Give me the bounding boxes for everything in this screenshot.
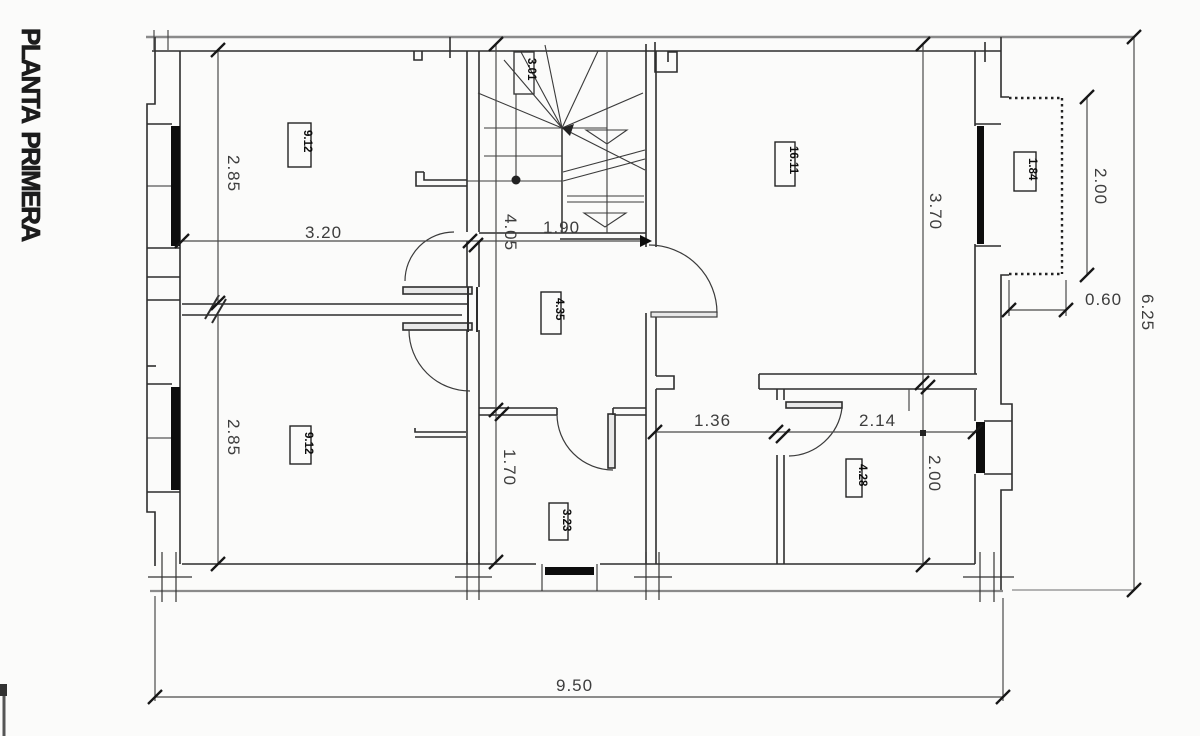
svg-text:3.01: 3.01 bbox=[525, 58, 537, 81]
svg-text:4.35: 4.35 bbox=[553, 298, 565, 321]
svg-text:3.70: 3.70 bbox=[926, 193, 945, 230]
svg-text:2.85: 2.85 bbox=[224, 419, 243, 456]
svg-text:6.25: 6.25 bbox=[1138, 294, 1157, 331]
svg-text:1.84: 1.84 bbox=[1026, 158, 1038, 181]
svg-text:4.05: 4.05 bbox=[501, 214, 520, 251]
svg-text:2.00: 2.00 bbox=[1091, 168, 1110, 205]
svg-text:3.20: 3.20 bbox=[305, 223, 342, 242]
svg-text:9.12: 9.12 bbox=[301, 130, 313, 152]
svg-text:9.12: 9.12 bbox=[302, 432, 314, 454]
svg-text:9.50: 9.50 bbox=[556, 676, 593, 695]
svg-text:16.11: 16.11 bbox=[787, 146, 799, 175]
svg-text:4.28: 4.28 bbox=[856, 464, 868, 487]
svg-text:1.90: 1.90 bbox=[543, 218, 580, 237]
svg-text:3.23: 3.23 bbox=[560, 509, 572, 531]
svg-text:2.14: 2.14 bbox=[859, 411, 896, 430]
svg-text:1.70: 1.70 bbox=[500, 449, 519, 486]
svg-text:PLANTA PRIMERA: PLANTA PRIMERA bbox=[16, 28, 46, 242]
svg-text:2.00: 2.00 bbox=[925, 455, 944, 492]
svg-text:2.85: 2.85 bbox=[224, 155, 243, 192]
svg-text:1.36: 1.36 bbox=[694, 411, 731, 430]
svg-text:0.60: 0.60 bbox=[1085, 290, 1122, 309]
